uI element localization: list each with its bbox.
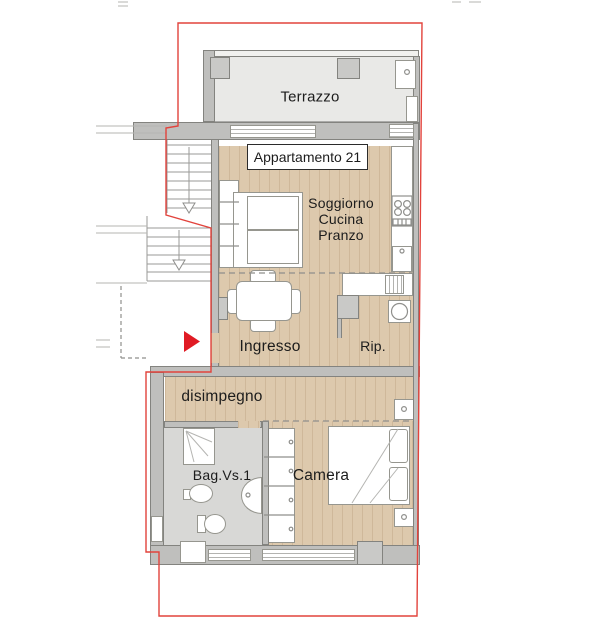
- bedroom-label: Camera: [293, 467, 349, 485]
- kitchen-sink: [392, 246, 412, 272]
- bidet: [189, 484, 213, 503]
- sofa-cushion-bottom: [247, 230, 299, 264]
- living-room-label-line2: Cucina: [308, 211, 374, 227]
- apartment-name-box: Appartamento 21: [247, 144, 368, 170]
- entry-label: Ingresso: [239, 338, 300, 356]
- bathroom-right-wall: [262, 421, 269, 545]
- exterior-unit-bottom-left: [180, 541, 206, 563]
- entry-door-opening: [211, 333, 219, 363]
- bottom-pillar: [357, 541, 383, 565]
- living-room-label: Soggiorno Cucina Pranzo: [308, 195, 374, 243]
- stair-arrow-lower: [173, 260, 185, 270]
- pillow-top: [389, 429, 408, 463]
- terrace-pillar-left: [210, 57, 230, 79]
- sofa-cushion-top: [247, 196, 299, 230]
- pillow-bottom: [389, 467, 408, 501]
- living-room-label-line1: Soggiorno: [308, 195, 374, 211]
- window-kitchen-top: [389, 124, 414, 138]
- washing-machine: [388, 300, 411, 323]
- right-wall-main: [413, 123, 419, 565]
- window-living-top: [230, 125, 316, 138]
- hallway-label: disimpegno: [181, 388, 262, 406]
- bathroom-door-opening: [238, 421, 260, 428]
- terrace-pillar-mid: [337, 58, 360, 79]
- window-bathroom-bottom: [208, 549, 251, 561]
- shower: [183, 428, 215, 465]
- entrance-arrow-icon: [184, 331, 200, 352]
- living-room-label-line3: Pranzo: [308, 227, 374, 243]
- hallway-top-wall: [150, 366, 420, 377]
- nightstand: [394, 508, 414, 527]
- stair-arrow-upper: [183, 203, 195, 213]
- wall-niche-right: [406, 96, 418, 122]
- wall-niche-bath-left: [151, 516, 163, 542]
- terrace-sink-unit: [395, 60, 416, 89]
- terrace-parapet-top: [203, 50, 419, 57]
- drainboard: [385, 275, 404, 294]
- terrace-label: Terrazzo: [280, 89, 339, 106]
- storage-label: Rip.: [360, 338, 386, 354]
- radiator-corridor: [394, 399, 414, 420]
- storage-pillar: [337, 295, 359, 319]
- storage-door-opening: [337, 338, 342, 366]
- window-bedroom-bottom: [262, 549, 355, 561]
- floor-plan: Terrazzo Appartamento 21 Soggiorno Cucin…: [0, 0, 603, 630]
- toilet: [204, 514, 226, 534]
- apartment-name-label: Appartamento 21: [254, 149, 361, 165]
- dining-table: [236, 281, 292, 321]
- bathroom-label: Bag.Vs.1: [193, 467, 251, 483]
